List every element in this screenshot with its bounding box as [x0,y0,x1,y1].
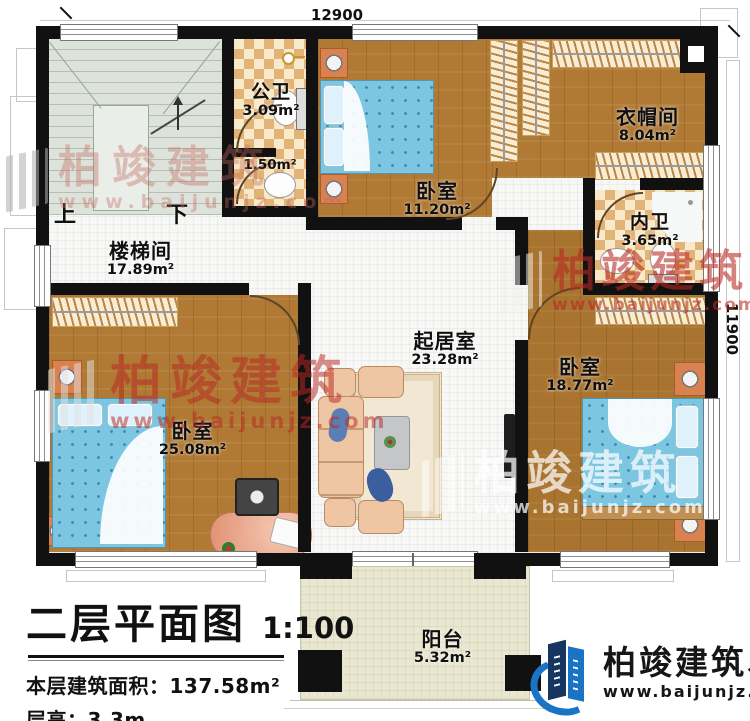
interior-wall [583,178,595,295]
nightstand [674,362,706,396]
closet-rack [595,297,707,325]
logo-brand-chars: 柏竣建筑 [603,643,747,682]
title-block: 二层平面图1:100 本层建筑面积：137.58m² 层高：3.3m [26,590,354,721]
interior-wall [583,283,705,295]
closet-rack [52,297,178,327]
logo-tower-dark [548,640,566,700]
interior-wall [49,283,249,295]
closet-rack [522,40,550,136]
stair-arrow-head [173,96,183,105]
dimension-right: 11900 [723,289,741,369]
room-label-stairwell: 楼梯间17.89m² [78,240,203,279]
floor-height-label: 层高： [26,708,88,721]
page-title: 二层平面图 [26,600,246,648]
exterior-step-outline [4,228,38,310]
room-label-bedroom-right: 卧室18.77m² [520,356,640,395]
balcony-pillar [474,553,526,579]
title-underline-thin [28,660,284,661]
washbasin [600,248,634,274]
exterior-step-outline [16,48,38,102]
interior-wall [496,217,528,230]
interior-wall [515,230,528,285]
stair-direction-arrow [177,104,179,130]
closet-rack [490,40,518,162]
closet-rack [552,40,686,68]
bed-frame [582,506,704,520]
logo-url: www.baijunjz.com [603,682,750,701]
brand-logo: 柏竣建筑、 www.baijunjz.com [536,642,750,704]
loveseat [358,366,404,398]
monitor [235,478,279,516]
bed-pillow [676,406,698,448]
wall-lamp [282,52,295,65]
nightstand [320,48,348,78]
tv [504,414,515,478]
armchair [324,498,356,527]
bed-blanket-fold [608,399,672,447]
interior-wall [306,217,462,230]
nightstand [52,360,82,394]
window [34,245,51,307]
wall-corner-window [688,46,704,62]
wall-lamp-stem [293,56,305,58]
interior-wall [306,39,318,230]
logo-brand-name: 柏竣建筑、 [603,646,750,679]
room-label-bedroom-top: 卧室11.20m² [377,180,497,219]
window [703,145,720,292]
sliding-door-divider [412,553,414,566]
floor-height-value: 3.3m [88,708,146,721]
shower-drain [688,200,693,205]
plan-title-row: 二层平面图1:100 [26,590,354,650]
bed-pillow [58,404,102,426]
logo-tower-blue [568,646,584,701]
floor-area-label: 本层建筑面积： [26,674,170,698]
window-sill [66,570,266,582]
bed-pillow [324,86,344,124]
room-label-wash-nook: 1.50m² [234,158,306,173]
logo-text: 柏竣建筑、 www.baijunjz.com [603,646,750,701]
exterior-step-outline [10,96,38,216]
floor-height-line: 层高：3.3m [26,704,354,721]
logo-building-icon [536,642,594,704]
nightstand [320,174,348,204]
armchair [324,368,356,397]
bed-pillow [324,128,344,166]
interior-wall [298,283,311,552]
closet-rack [595,152,707,180]
room-label-balcony: 阳台5.32m² [390,628,495,667]
stair-down-label: 下 [162,204,192,229]
balcony-pillar [300,553,352,579]
window [703,398,720,520]
interior-wall [222,39,234,215]
floor-area-line: 本层建筑面积：137.58m² [26,670,354,699]
dimension-top: 12900 [262,6,412,24]
window [352,24,478,41]
interior-wall [640,178,705,190]
window [34,390,51,462]
plan-scale: 1:100 [262,611,354,645]
title-underline [28,655,284,658]
loveseat [358,500,404,534]
interior-wall [222,206,318,217]
window [75,551,257,568]
room-label-master-bath: 内卫3.65m² [600,212,700,250]
window [560,551,670,568]
floor-area-value: 137.58m² [170,674,281,698]
room-label-living-room: 起居室23.28m² [385,330,505,369]
dimension-tick [60,7,73,20]
floor-plan-canvas: 上 下 [0,0,750,721]
room-label-public-bath: 公卫3.09m² [234,82,308,120]
room-label-cloakroom: 衣帽间8.04m² [585,106,710,145]
stair-up-label: 上 [50,204,80,229]
window [60,24,178,41]
table-flowers [384,436,396,448]
room-label-bedroom-left: 卧室25.08m² [130,420,255,459]
stair-landing [93,105,149,211]
window-sill [552,570,674,582]
bed-pillow [676,456,698,498]
